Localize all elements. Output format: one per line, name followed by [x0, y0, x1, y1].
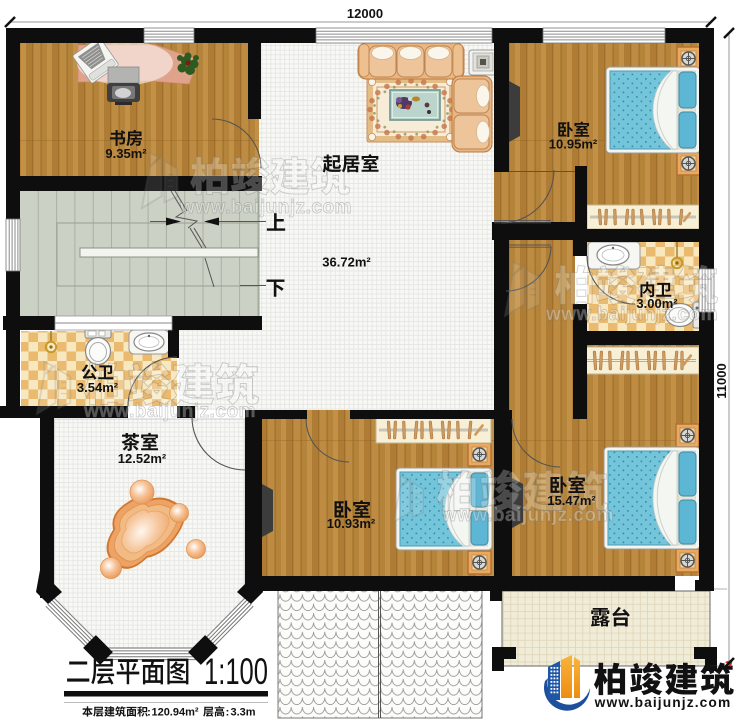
- svg-text:10.95m²: 10.95m²: [549, 137, 598, 152]
- svg-text:www.baijunjz.com: www.baijunjz.com: [441, 505, 614, 526]
- svg-text:3.3m: 3.3m: [230, 707, 255, 719]
- svg-text:9.35m²: 9.35m²: [105, 146, 147, 161]
- svg-text:12.52m²: 12.52m²: [118, 451, 167, 466]
- svg-text:120.94m²: 120.94m²: [151, 707, 198, 719]
- svg-text:www.baijunjz.com: www.baijunjz.com: [179, 197, 352, 218]
- svg-text:10.93m²: 10.93m²: [327, 516, 376, 531]
- svg-text:3.00m²: 3.00m²: [636, 296, 678, 311]
- svg-text::: :: [226, 707, 230, 719]
- svg-text:15.47m²: 15.47m²: [547, 493, 596, 508]
- svg-text::: :: [147, 707, 151, 719]
- svg-text:12000: 12000: [347, 6, 383, 21]
- svg-text:11000: 11000: [714, 363, 729, 398]
- svg-text:36.72m²: 36.72m²: [322, 255, 371, 270]
- svg-text:1:100: 1:100: [204, 651, 268, 692]
- svg-text:www.baijunjz.com: www.baijunjz.com: [83, 401, 256, 422]
- svg-text:www.baijunjz.com: www.baijunjz.com: [545, 304, 718, 325]
- svg-text:3.54m²: 3.54m²: [77, 380, 119, 395]
- svg-text:www.baijunjz.com: www.baijunjz.com: [594, 695, 732, 710]
